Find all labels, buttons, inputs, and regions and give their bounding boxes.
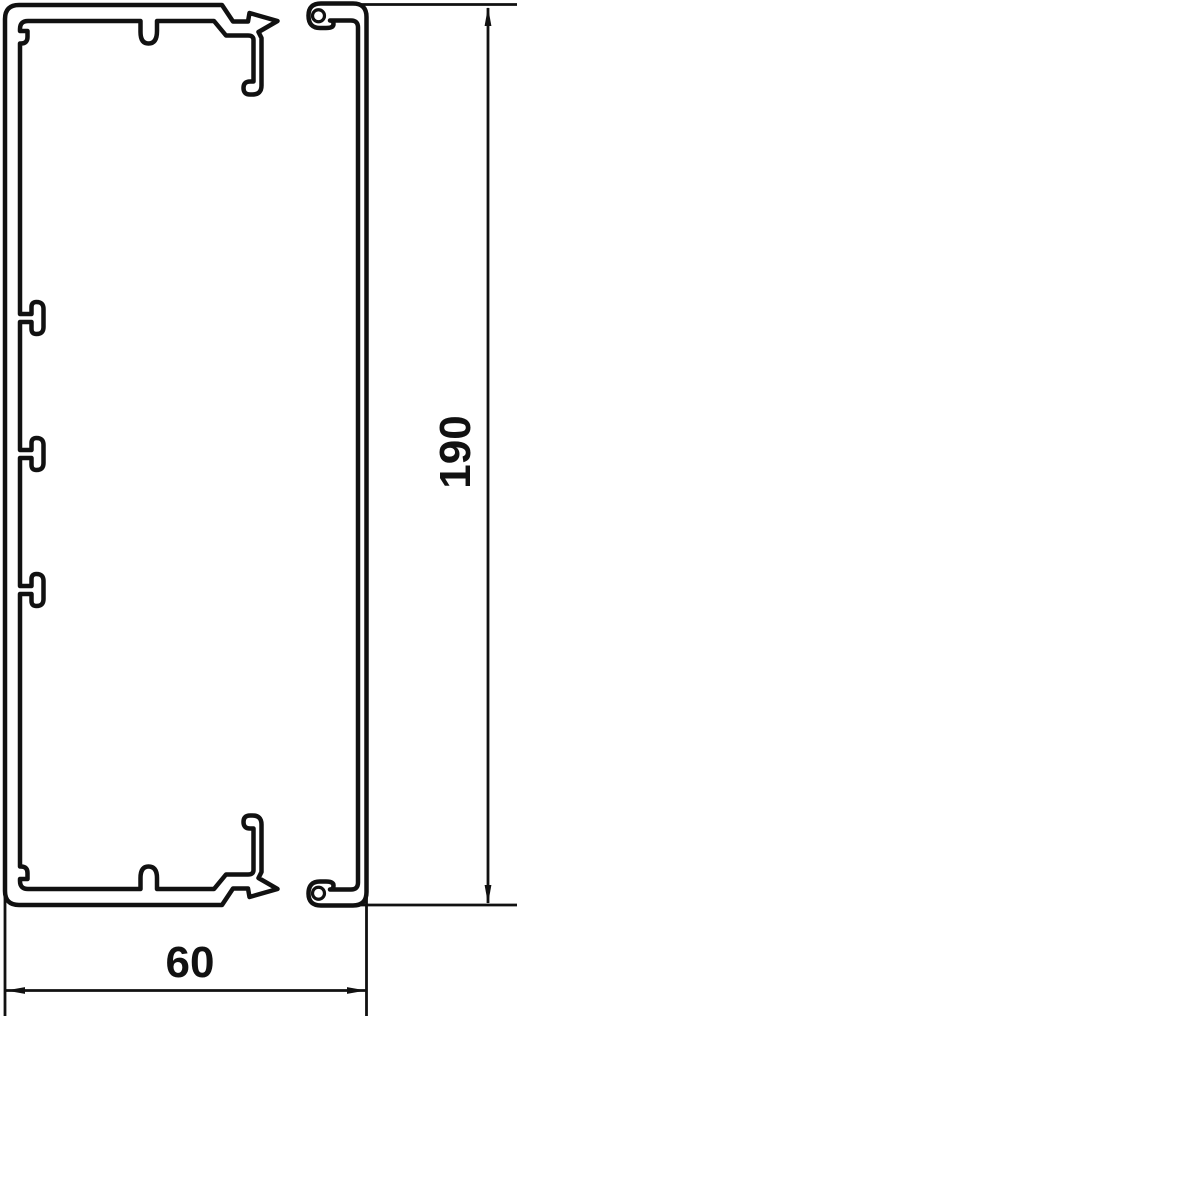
width-dimension-arrow-left (6, 987, 25, 994)
cover-top-curl-detail (313, 10, 325, 22)
trunking-cover-profile (309, 4, 367, 906)
height-dimension-arrow-down (485, 885, 492, 904)
drawing-canvas: 190 60 (0, 0, 1200, 1200)
trunking-base-profile (5, 5, 278, 905)
width-dimension: 60 (6, 938, 366, 994)
height-dimension-label: 190 (431, 415, 480, 488)
technical-drawing: 190 60 (0, 0, 1200, 1200)
cover-bottom-curl-detail (313, 887, 325, 899)
width-dimension-label: 60 (166, 938, 215, 987)
height-dimension: 190 (431, 7, 491, 904)
height-dimension-arrow-up (485, 7, 492, 26)
width-dimension-arrow-right (347, 987, 366, 994)
